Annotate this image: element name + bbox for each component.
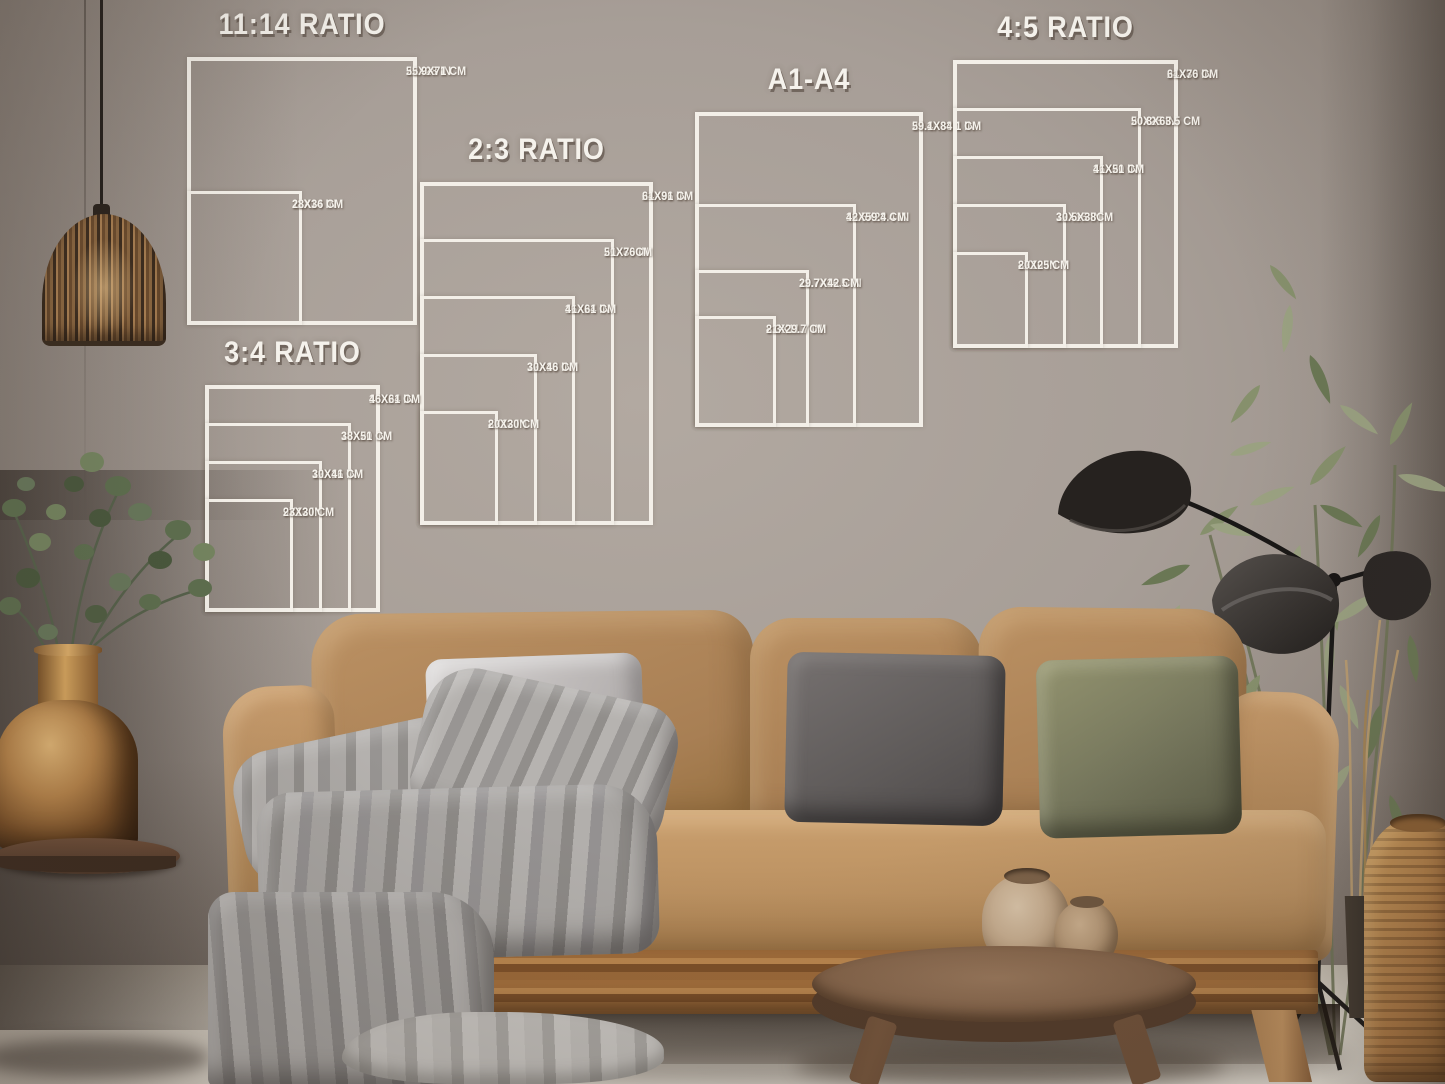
poster-size-guide-mockup: 11:14 RATIO 22X28 IN55.9X71 CM11X14 IN28… xyxy=(0,0,1445,1084)
vignette xyxy=(0,0,1445,1084)
